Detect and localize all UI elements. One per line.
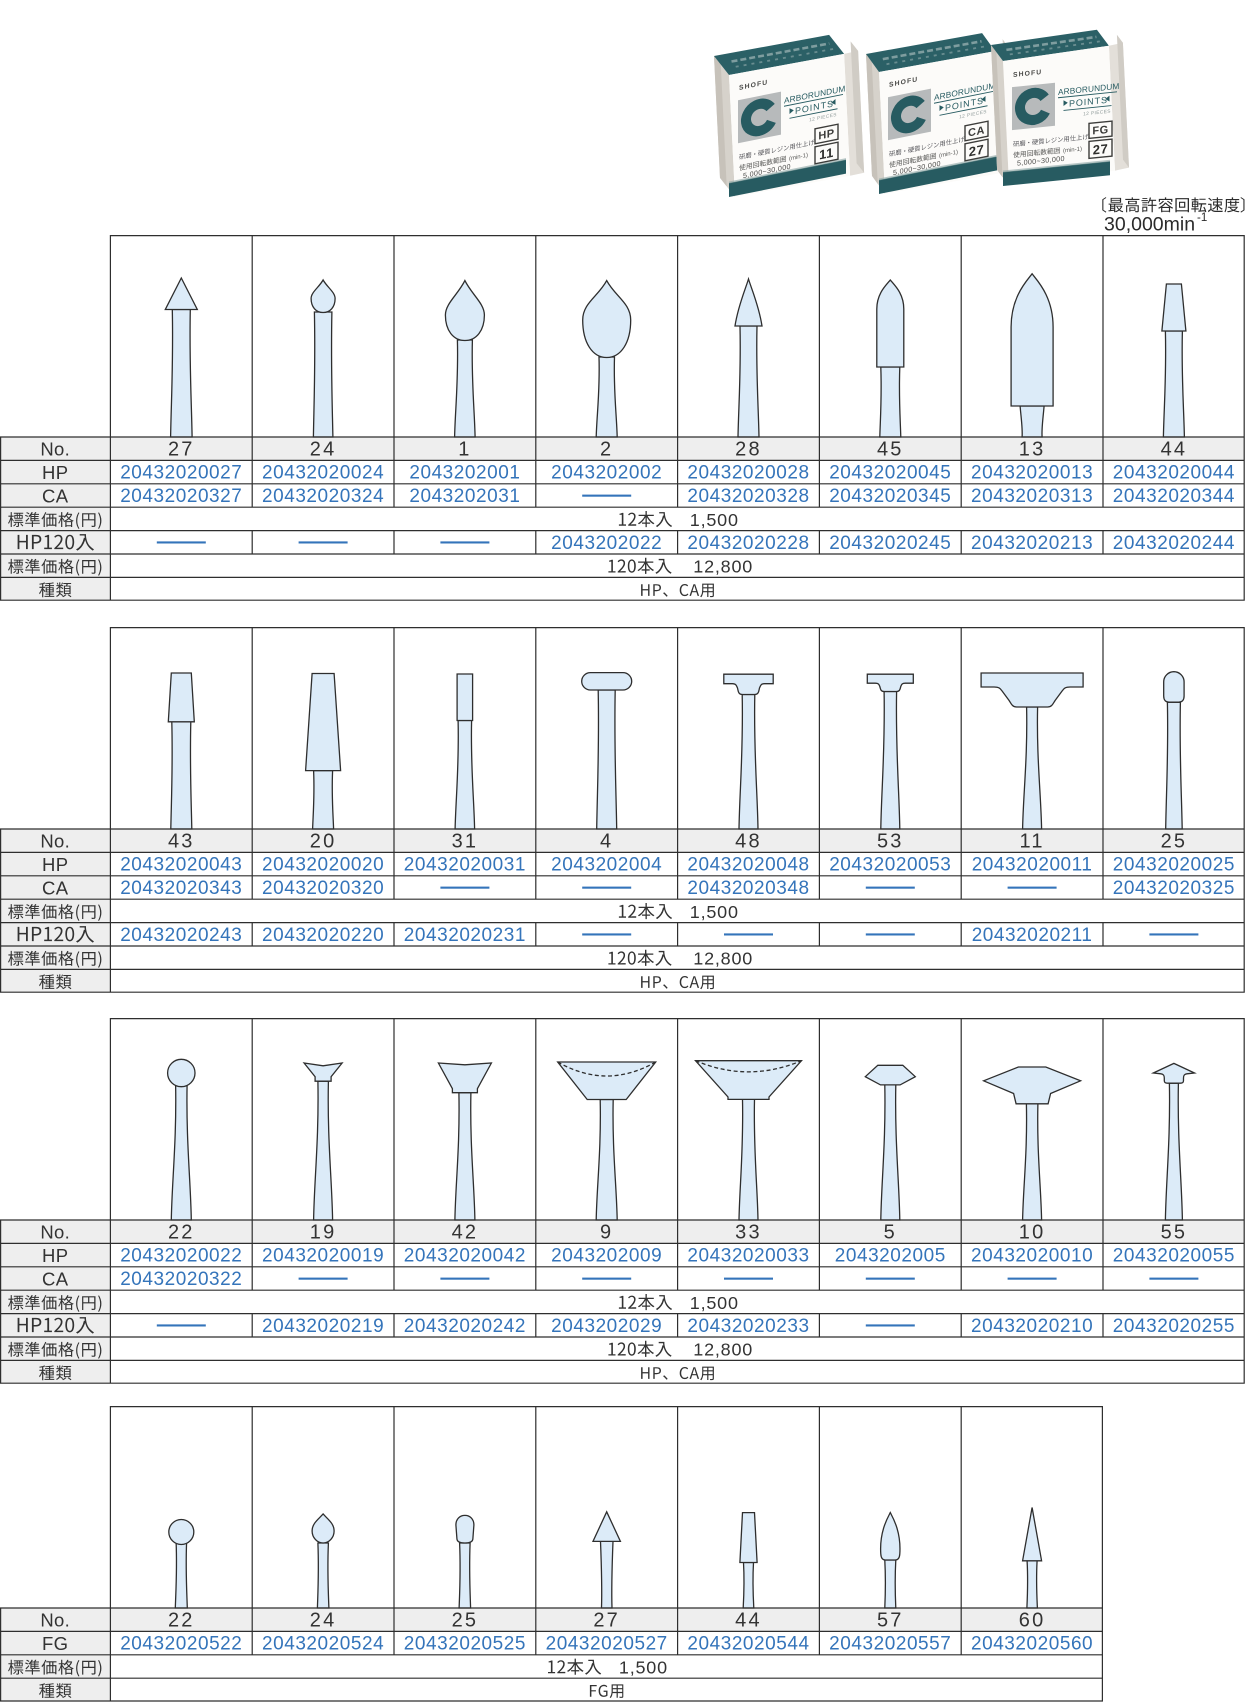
- svg-text:20432020043: 20432020043: [120, 855, 242, 876]
- svg-text:20432020233: 20432020233: [687, 1316, 809, 1337]
- svg-text:13: 13: [1019, 439, 1046, 461]
- svg-text:20432020242: 20432020242: [404, 1316, 526, 1337]
- svg-text:20432020025: 20432020025: [1113, 855, 1235, 876]
- svg-text:20432020324: 20432020324: [262, 486, 384, 507]
- svg-text:20432020245: 20432020245: [829, 533, 951, 554]
- svg-text:HP: HP: [42, 462, 68, 483]
- svg-text:27: 27: [168, 439, 195, 461]
- svg-text:12,800: 12,800: [693, 949, 753, 969]
- svg-text:11: 11: [819, 145, 834, 163]
- svg-text:5: 5: [884, 1222, 897, 1244]
- svg-text:20432020019: 20432020019: [262, 1246, 384, 1267]
- svg-text:4: 4: [600, 831, 613, 853]
- svg-text:20432020055: 20432020055: [1113, 1246, 1235, 1267]
- svg-text:24: 24: [310, 439, 337, 461]
- svg-text:2043202022: 2043202022: [551, 533, 662, 554]
- svg-text:FG: FG: [1092, 124, 1108, 138]
- svg-text:20432020219: 20432020219: [262, 1316, 384, 1337]
- svg-text:CA: CA: [42, 1268, 69, 1289]
- svg-text:20432020053: 20432020053: [829, 855, 951, 876]
- svg-text:20432020560: 20432020560: [971, 1634, 1093, 1655]
- svg-text:20432020344: 20432020344: [1113, 486, 1235, 507]
- svg-text:20432020525: 20432020525: [404, 1634, 526, 1655]
- svg-text:20432020348: 20432020348: [687, 878, 809, 899]
- svg-text:1,500: 1,500: [690, 1293, 739, 1313]
- svg-text:20432020213: 20432020213: [971, 533, 1093, 554]
- svg-text:1,500: 1,500: [619, 1657, 668, 1677]
- svg-text:9: 9: [600, 1222, 613, 1244]
- svg-text:25: 25: [452, 1610, 479, 1632]
- svg-text:55: 55: [1161, 1222, 1188, 1244]
- svg-text:HP: HP: [42, 854, 68, 875]
- svg-text:20432020048: 20432020048: [687, 855, 809, 876]
- svg-text:24: 24: [310, 1610, 337, 1632]
- svg-text:No.: No.: [40, 831, 70, 852]
- svg-text:27: 27: [593, 1610, 620, 1632]
- svg-text:45: 45: [877, 439, 904, 461]
- svg-text:20432020033: 20432020033: [687, 1246, 809, 1267]
- svg-text:31: 31: [452, 831, 479, 853]
- svg-text:11: 11: [1020, 831, 1045, 853]
- svg-text:20432020220: 20432020220: [262, 925, 384, 946]
- svg-text:20432020524: 20432020524: [262, 1634, 384, 1655]
- svg-text:1,500: 1,500: [690, 510, 739, 530]
- svg-text:60: 60: [1019, 1610, 1046, 1632]
- svg-text:CA: CA: [42, 877, 69, 898]
- svg-text:20432020522: 20432020522: [120, 1634, 242, 1655]
- svg-text:20432020328: 20432020328: [687, 486, 809, 507]
- svg-text:20432020045: 20432020045: [829, 463, 951, 484]
- svg-text:20432020544: 20432020544: [687, 1634, 809, 1655]
- svg-text:20432020527: 20432020527: [546, 1634, 668, 1655]
- svg-text:CA: CA: [42, 485, 69, 506]
- svg-text:20432020244: 20432020244: [1113, 533, 1235, 554]
- svg-text:20432020044: 20432020044: [1113, 463, 1235, 484]
- svg-text:HP: HP: [42, 1245, 68, 1266]
- svg-text:44: 44: [735, 1610, 762, 1632]
- svg-text:20432020024: 20432020024: [262, 463, 384, 484]
- svg-text:20432020320: 20432020320: [262, 878, 384, 899]
- svg-text:2043202031: 2043202031: [409, 486, 520, 507]
- svg-text:10: 10: [1019, 1222, 1046, 1244]
- svg-text:20432020011: 20432020011: [972, 855, 1093, 876]
- svg-text:44: 44: [1161, 439, 1188, 461]
- svg-text:20432020228: 20432020228: [687, 533, 809, 554]
- svg-text:20432020022: 20432020022: [120, 1246, 242, 1267]
- svg-text:53: 53: [877, 831, 904, 853]
- svg-text:30,000min: 30,000min: [1104, 214, 1195, 236]
- svg-text:42: 42: [452, 1222, 479, 1244]
- svg-text:20: 20: [310, 831, 337, 853]
- svg-text:43: 43: [168, 831, 195, 853]
- svg-text:20432020211: 20432020211: [972, 925, 1093, 946]
- svg-text:20432020325: 20432020325: [1113, 878, 1235, 899]
- svg-text:No.: No.: [40, 439, 70, 460]
- svg-text:22: 22: [168, 1222, 195, 1244]
- svg-text:2: 2: [600, 439, 613, 461]
- svg-text:27: 27: [1093, 141, 1108, 158]
- svg-text:19: 19: [310, 1222, 337, 1244]
- svg-text:1: 1: [458, 439, 471, 461]
- svg-text:57: 57: [877, 1610, 904, 1632]
- svg-text:2043202002: 2043202002: [551, 463, 662, 484]
- svg-text:20432020210: 20432020210: [971, 1316, 1093, 1337]
- svg-text:20432020231: 20432020231: [404, 925, 526, 946]
- svg-text:20432020031: 20432020031: [404, 855, 526, 876]
- svg-text:2043202004: 2043202004: [551, 855, 662, 876]
- svg-text:25: 25: [1161, 831, 1188, 853]
- svg-text:2043202001: 2043202001: [409, 463, 520, 484]
- svg-text:20432020255: 20432020255: [1113, 1316, 1235, 1337]
- svg-text:2043202029: 2043202029: [551, 1316, 662, 1337]
- svg-text:20432020013: 20432020013: [971, 463, 1093, 484]
- svg-text:28: 28: [735, 439, 762, 461]
- svg-text:20432020557: 20432020557: [829, 1634, 951, 1655]
- svg-text:20432020243: 20432020243: [120, 925, 242, 946]
- svg-text:27: 27: [969, 142, 984, 160]
- svg-text:48: 48: [735, 831, 762, 853]
- svg-text:20432020027: 20432020027: [120, 463, 242, 484]
- svg-text:No.: No.: [40, 1222, 70, 1243]
- svg-text:20432020327: 20432020327: [120, 486, 242, 507]
- svg-text:2043202005: 2043202005: [835, 1246, 946, 1267]
- svg-text:No.: No.: [40, 1610, 70, 1631]
- svg-text:-1: -1: [1197, 212, 1207, 224]
- svg-text:20432020322: 20432020322: [120, 1269, 242, 1290]
- svg-text:1,500: 1,500: [690, 902, 739, 922]
- svg-text:20432020010: 20432020010: [971, 1246, 1093, 1267]
- svg-text:12,800: 12,800: [693, 557, 753, 577]
- svg-text:FG: FG: [42, 1633, 68, 1654]
- svg-text:2043202009: 2043202009: [551, 1246, 662, 1267]
- svg-text:12,800: 12,800: [693, 1340, 753, 1360]
- svg-text:20432020345: 20432020345: [829, 486, 951, 507]
- svg-text:20432020042: 20432020042: [404, 1246, 526, 1267]
- svg-text:33: 33: [735, 1222, 762, 1244]
- svg-text:20432020028: 20432020028: [687, 463, 809, 484]
- svg-text:20432020313: 20432020313: [971, 486, 1093, 507]
- svg-text:20432020020: 20432020020: [262, 855, 384, 876]
- svg-text:22: 22: [168, 1610, 195, 1632]
- svg-text:20432020343: 20432020343: [120, 878, 242, 899]
